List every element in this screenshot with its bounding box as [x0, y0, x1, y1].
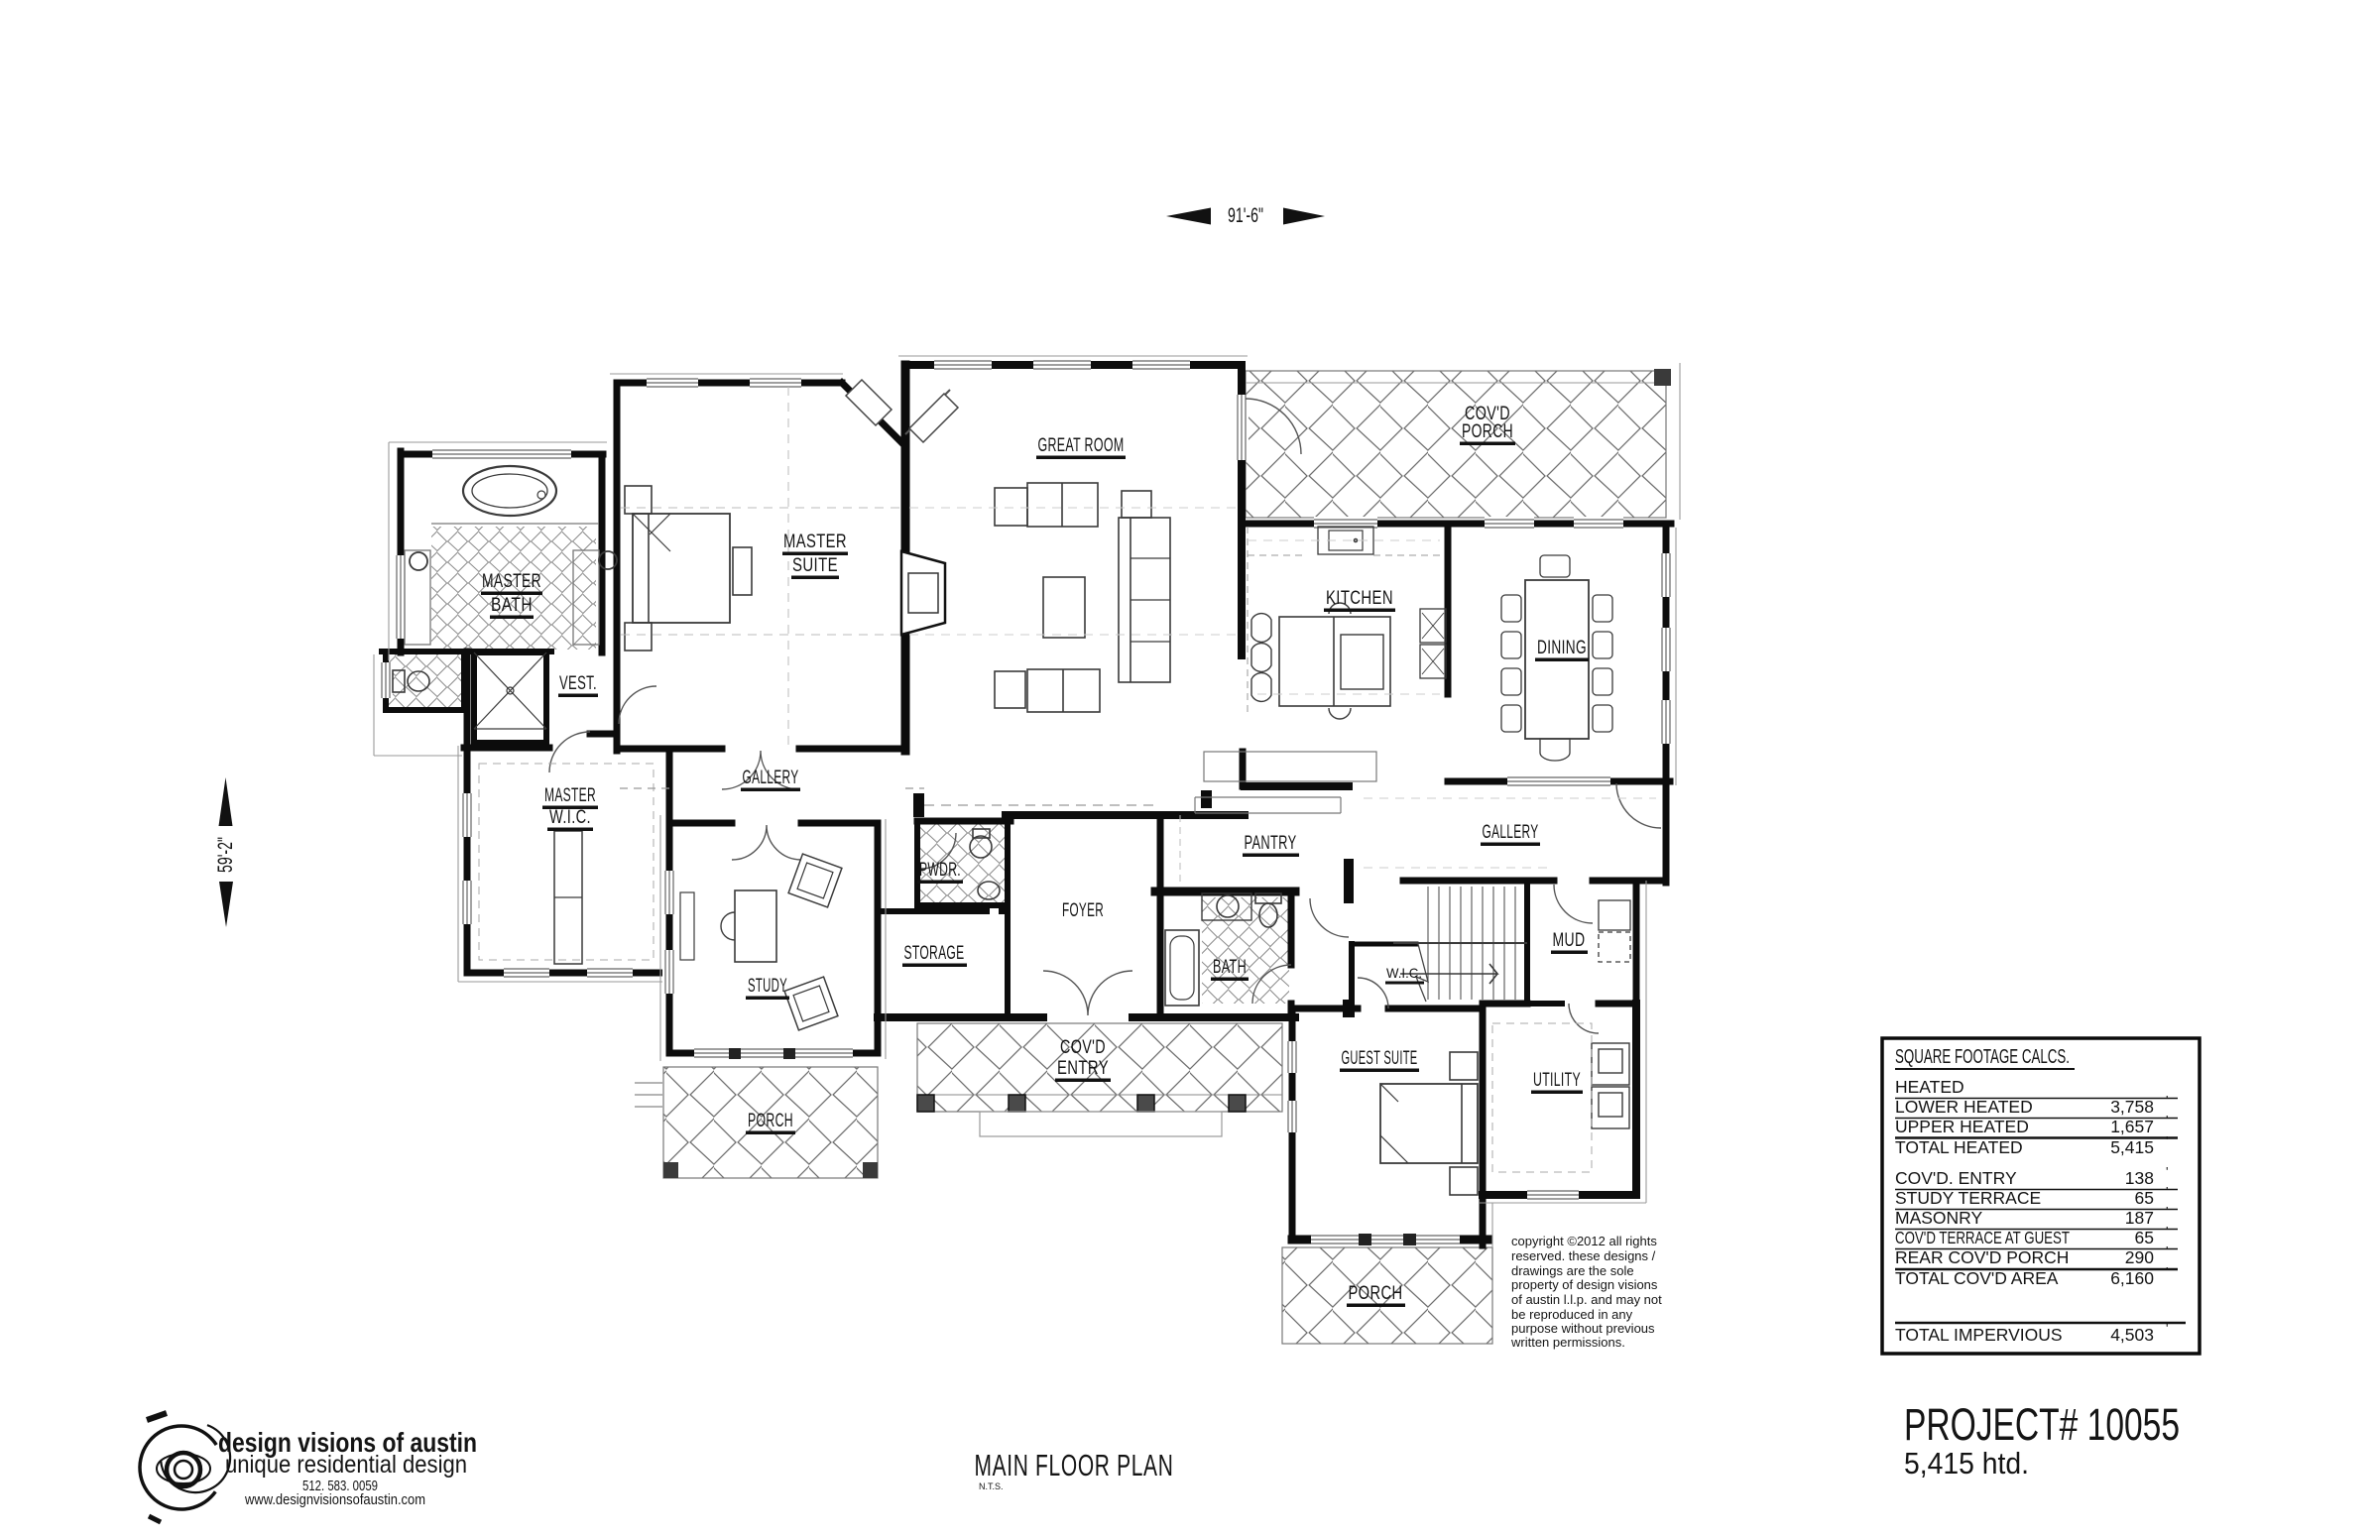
- svg-text:TOTAL HEATED: TOTAL HEATED: [1895, 1137, 2023, 1157]
- svg-text:PWDR.: PWDR.: [919, 860, 961, 881]
- svg-text:TOTAL IMPERVIOUS: TOTAL IMPERVIOUS: [1895, 1325, 2063, 1345]
- svg-text:ENTRY: ENTRY: [1057, 1058, 1109, 1079]
- svg-text:PORCH: PORCH: [1349, 1283, 1403, 1304]
- svg-text:': ': [2166, 1204, 2168, 1219]
- svg-text:UTILITY: UTILITY: [1533, 1070, 1581, 1091]
- svg-text:PANTRY: PANTRY: [1245, 833, 1297, 854]
- svg-text:MASTER: MASTER: [544, 785, 596, 806]
- svg-text:GALLERY: GALLERY: [743, 768, 799, 788]
- svg-text:LOWER HEATED: LOWER HEATED: [1895, 1097, 2033, 1117]
- svg-text:VEST.: VEST.: [559, 673, 597, 694]
- svg-text:SUITE: SUITE: [792, 555, 838, 576]
- svg-text:MAIN FLOOR PLAN: MAIN FLOOR PLAN: [975, 1448, 1174, 1482]
- svg-text:': ': [2166, 1133, 2168, 1148]
- svg-text:MASTER: MASTER: [783, 532, 847, 552]
- svg-text:1,657: 1,657: [2110, 1117, 2154, 1136]
- svg-text:unique residential design: unique residential design: [225, 1451, 467, 1479]
- svg-text:KITCHEN: KITCHEN: [1326, 588, 1393, 609]
- svg-text:STUDY: STUDY: [748, 976, 787, 997]
- svg-text:': ': [2166, 1164, 2168, 1179]
- svg-text:GUEST SUITE: GUEST SUITE: [1342, 1048, 1418, 1069]
- svg-text:GALLERY: GALLERY: [1483, 822, 1539, 843]
- svg-text:GREAT ROOM: GREAT ROOM: [1038, 435, 1125, 456]
- svg-text:DINING: DINING: [1537, 638, 1587, 658]
- svg-text:MASTER: MASTER: [482, 571, 541, 592]
- svg-text:BATH: BATH: [491, 595, 533, 616]
- svg-text:MASONRY: MASONRY: [1895, 1208, 1982, 1228]
- svg-text:59'-2": 59'-2": [214, 837, 237, 873]
- svg-text:property of design visions: property of design visions: [1511, 1277, 1658, 1292]
- svg-text:5,415: 5,415: [2110, 1137, 2154, 1157]
- svg-text:3,758: 3,758: [2110, 1097, 2154, 1117]
- svg-text:reserved. these designs /: reserved. these designs /: [1511, 1248, 1656, 1263]
- svg-text:www.designvisionsofaustin.com: www.designvisionsofaustin.com: [244, 1491, 425, 1508]
- svg-text:purpose without previous: purpose without previous: [1511, 1321, 1655, 1336]
- svg-text:65: 65: [2135, 1228, 2154, 1247]
- svg-text:COV'D. ENTRY: COV'D. ENTRY: [1895, 1168, 2017, 1188]
- svg-text:STUDY TERRACE: STUDY TERRACE: [1895, 1188, 2041, 1208]
- svg-text:TOTAL COV'D AREA: TOTAL COV'D AREA: [1895, 1268, 2059, 1288]
- svg-text:COV'D: COV'D: [1060, 1037, 1106, 1058]
- svg-text:PORCH: PORCH: [748, 1111, 793, 1131]
- svg-text:91'-6": 91'-6": [1228, 204, 1263, 227]
- svg-text:FOYER: FOYER: [1062, 900, 1104, 921]
- svg-text:290: 290: [2125, 1247, 2154, 1267]
- svg-text:W.I.C.: W.I.C.: [1386, 965, 1422, 981]
- svg-text:STORAGE: STORAGE: [904, 943, 965, 964]
- svg-text:W.I.C.: W.I.C.: [549, 807, 591, 828]
- svg-text:UPPER HEATED: UPPER HEATED: [1895, 1117, 2029, 1136]
- svg-text:drawings are the sole: drawings are the sole: [1511, 1263, 1634, 1278]
- svg-text:6,160: 6,160: [2110, 1268, 2154, 1288]
- svg-text:187: 187: [2125, 1208, 2154, 1228]
- svg-text:of austin l.l.p. and may not: of austin l.l.p. and may not: [1511, 1292, 1662, 1307]
- svg-text:HEATED: HEATED: [1895, 1077, 1964, 1097]
- svg-text:5,415 htd.: 5,415 htd.: [1904, 1446, 2029, 1481]
- svg-text:': ': [2166, 1224, 2168, 1239]
- svg-text:': ': [2166, 1184, 2168, 1199]
- svg-text:written permissions.: written permissions.: [1510, 1335, 1625, 1350]
- svg-text:': ': [2166, 1264, 2168, 1279]
- svg-text:BATH: BATH: [1213, 957, 1247, 978]
- svg-text:': ': [2166, 1113, 2168, 1127]
- svg-text:N.T.S.: N.T.S.: [979, 1481, 1004, 1491]
- svg-text:4,503: 4,503: [2110, 1325, 2154, 1345]
- svg-text:': ': [2166, 1093, 2168, 1108]
- svg-text:PROJECT# 10055: PROJECT# 10055: [1904, 1399, 2180, 1450]
- svg-text:SQUARE FOOTAGE CALCS.: SQUARE FOOTAGE CALCS.: [1895, 1046, 2070, 1068]
- svg-text:138: 138: [2125, 1168, 2154, 1188]
- svg-text:COV'D TERRACE AT GUEST: COV'D TERRACE AT GUEST: [1895, 1228, 2070, 1247]
- svg-text:copyright ©2012 all rights: copyright ©2012 all rights: [1511, 1234, 1657, 1248]
- svg-text:': ': [2166, 1244, 2168, 1258]
- svg-text:MUD: MUD: [1553, 930, 1586, 951]
- svg-text:65: 65: [2135, 1188, 2154, 1208]
- svg-text:be reproduced in any: be reproduced in any: [1511, 1307, 1633, 1322]
- svg-text:REAR COV'D PORCH: REAR COV'D PORCH: [1895, 1247, 2069, 1267]
- svg-text:PORCH: PORCH: [1462, 421, 1513, 442]
- svg-text:': ': [2166, 1321, 2168, 1336]
